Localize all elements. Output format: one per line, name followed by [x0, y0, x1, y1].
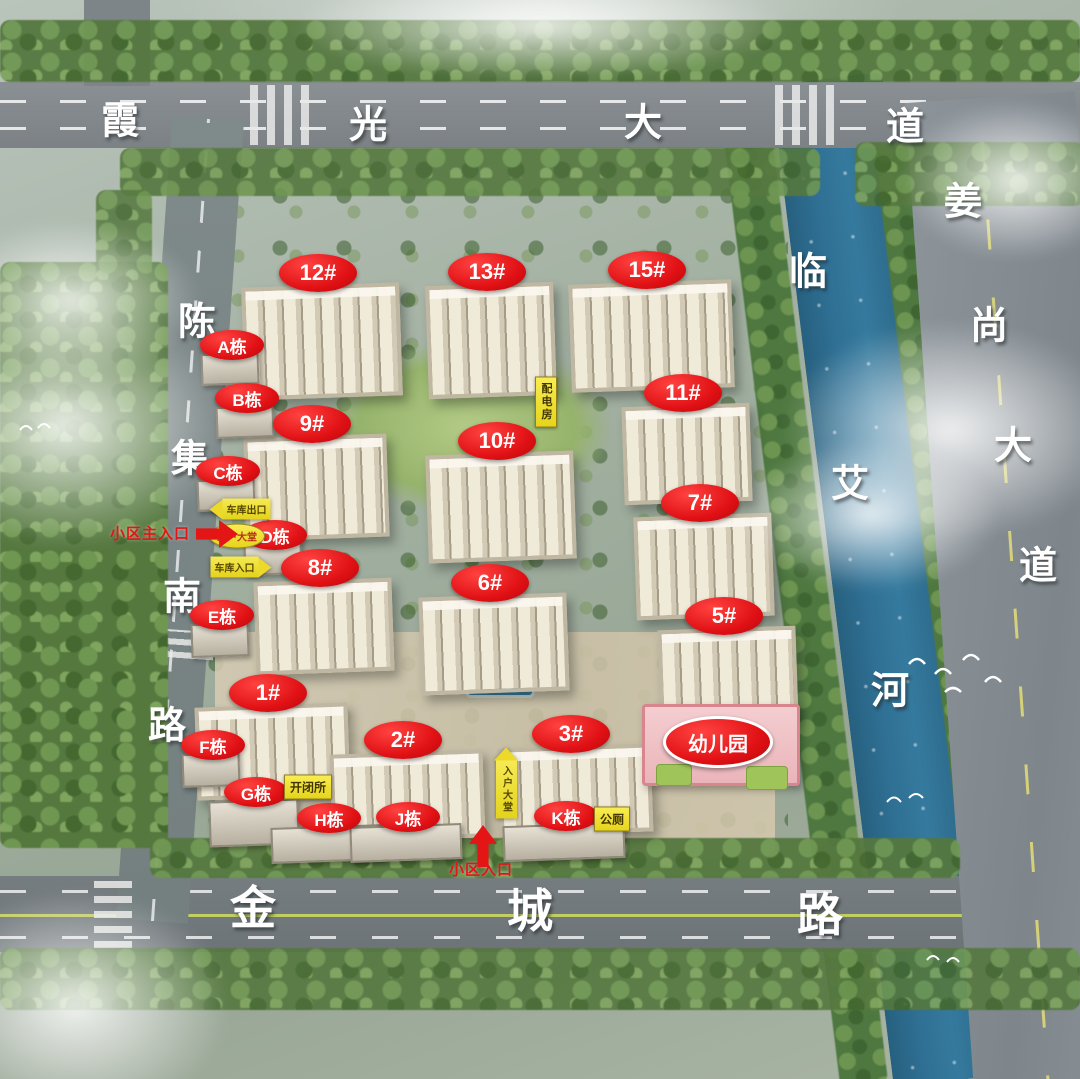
- kindergarten-label: 幼儿园: [663, 716, 773, 768]
- arrow-up-icon: [494, 748, 518, 761]
- garage-label-text: 车库出口: [223, 499, 271, 520]
- tower-12#: [241, 282, 403, 400]
- road-name-char-linai-river: 艾: [831, 453, 869, 508]
- block-label-J栋: J栋: [376, 802, 440, 832]
- garage-arrow-label-车库出口: 车库出口: [210, 499, 271, 520]
- building-label-12#: 12#: [279, 254, 357, 292]
- tree-row: [0, 948, 1080, 1010]
- road-name-char-jiangshang-avenue: 大: [994, 415, 1032, 470]
- block-label-G栋: G栋: [224, 777, 288, 807]
- arrow-right-icon: [259, 557, 272, 577]
- building-label-3#: 3#: [532, 715, 610, 753]
- tower-15#: [568, 279, 735, 393]
- building-label-2#: 2#: [364, 721, 442, 759]
- crosswalk: [250, 85, 314, 145]
- road-name-char-xiaguang-avenue: 霞: [101, 90, 139, 145]
- block-label-E栋: E栋: [190, 600, 254, 630]
- tree-row: [120, 148, 820, 196]
- road-name-char-jiangshang-avenue: 道: [1019, 535, 1057, 590]
- block-label-A栋: A栋: [200, 330, 264, 360]
- entrance-label-小区主入口: 小区主入口: [110, 523, 190, 544]
- road-name-char-xiaguang-avenue: 光: [349, 94, 387, 149]
- facility-label-公厕: 公厕: [594, 807, 630, 832]
- building-label-5#: 5#: [685, 597, 763, 635]
- birds-icon: [18, 418, 64, 438]
- building-label-13#: 13#: [448, 253, 526, 291]
- arrow-left-icon: [210, 499, 223, 519]
- road-name-char-chenji-south-road: 路: [148, 695, 186, 750]
- building-label-9#: 9#: [273, 405, 351, 443]
- birds-icon: [885, 788, 941, 810]
- birds-icon: [905, 648, 1015, 698]
- building-label-8#: 8#: [281, 549, 359, 587]
- block-label-C栋: C栋: [196, 456, 260, 486]
- block-label-K栋: K栋: [534, 801, 598, 831]
- building-label-11#: 11#: [644, 374, 722, 412]
- garage-label-text: 车库入口: [211, 557, 259, 578]
- building-label-6#: 6#: [451, 564, 529, 602]
- block-label-F栋: F栋: [181, 730, 245, 760]
- road-name-char-linai-river: 河: [871, 660, 909, 715]
- garage-arrow-label-入户大堂: 入户大堂: [494, 748, 518, 819]
- road-name-char-jincheng-road: 金: [230, 872, 276, 938]
- facility-label-开闭所: 开闭所: [284, 775, 332, 800]
- road-name-char-linai-river: 临: [789, 241, 827, 296]
- tower-10#: [425, 450, 577, 563]
- tower-6#: [418, 592, 569, 695]
- road-name-char-jiangshang-avenue: 姜: [944, 171, 982, 226]
- kindergarten-roof-patch: [656, 764, 692, 786]
- road-name-char-xiaguang-avenue: 大: [624, 92, 662, 147]
- tower-8#: [253, 578, 394, 676]
- birds-icon: [925, 948, 975, 968]
- crosswalk: [775, 85, 839, 145]
- forest-west: [0, 262, 168, 848]
- building-label-10#: 10#: [458, 422, 536, 460]
- road-name-char-xiaguang-avenue: 道: [886, 96, 924, 151]
- facility-label-配电房: 配电房: [535, 377, 557, 428]
- garage-label-text: 入户大堂: [496, 761, 517, 819]
- road-name-char-jiangshang-avenue: 尚: [970, 295, 1008, 350]
- tree-row: [96, 190, 152, 282]
- kindergarten-roof-patch: [746, 766, 788, 790]
- building-label-15#: 15#: [608, 251, 686, 289]
- building-label-1#: 1#: [229, 674, 307, 712]
- building-label-7#: 7#: [661, 484, 739, 522]
- garage-arrow-label-车库入口: 车库入口: [211, 557, 272, 578]
- tree-row: [0, 20, 1080, 82]
- masterplan-scene: 霞光大道姜尚大道陈集南路金城路临艾河12#13#15#9#11#10#7#8#6…: [0, 0, 1080, 1079]
- block-label-H栋: H栋: [297, 803, 361, 833]
- road-name-char-jincheng-road: 城: [507, 875, 553, 941]
- block-label-B栋: B栋: [215, 383, 279, 413]
- crosswalk: [94, 880, 132, 948]
- road-name-char-jincheng-road: 路: [797, 879, 843, 945]
